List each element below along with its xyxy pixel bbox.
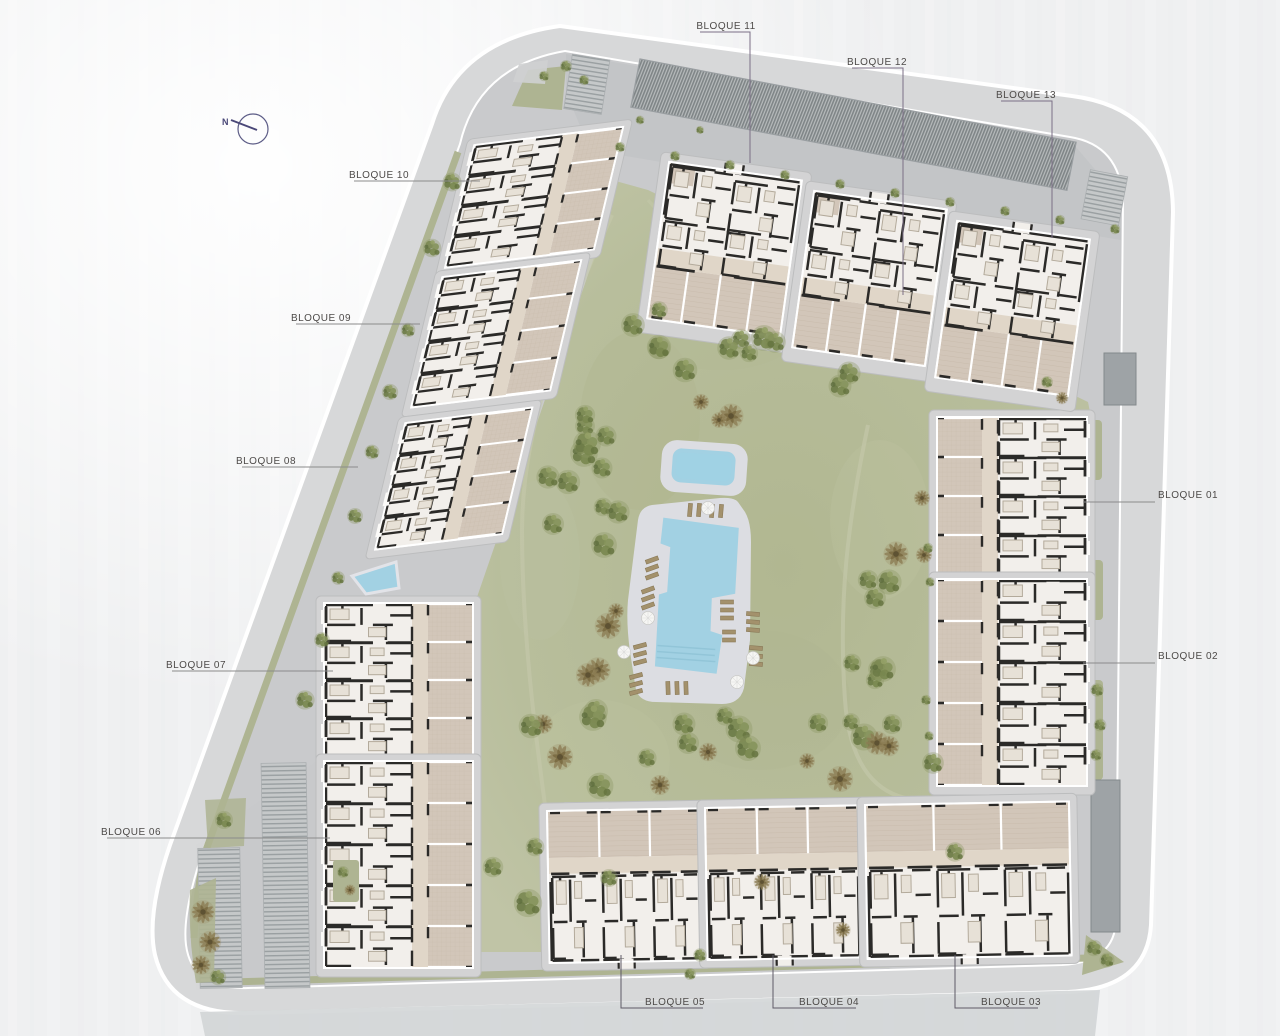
svg-text:BLOQUE 10: BLOQUE 10 [349, 170, 409, 181]
svg-text:BLOQUE 06: BLOQUE 06 [101, 827, 161, 838]
svg-text:BLOQUE 07: BLOQUE 07 [166, 660, 226, 671]
svg-text:BLOQUE 08: BLOQUE 08 [236, 456, 296, 467]
svg-text:BLOQUE 09: BLOQUE 09 [291, 313, 351, 324]
svg-text:BLOQUE 11: BLOQUE 11 [696, 21, 755, 32]
svg-text:BLOQUE 12: BLOQUE 12 [847, 57, 907, 68]
svg-text:BLOQUE 05: BLOQUE 05 [645, 997, 705, 1008]
svg-text:BLOQUE 04: BLOQUE 04 [799, 997, 859, 1008]
svg-text:BLOQUE 01: BLOQUE 01 [1158, 490, 1218, 501]
svg-text:N: N [222, 117, 229, 127]
svg-text:BLOQUE 03: BLOQUE 03 [981, 997, 1041, 1008]
svg-text:BLOQUE 13: BLOQUE 13 [996, 90, 1056, 101]
svg-text:BLOQUE 02: BLOQUE 02 [1158, 651, 1218, 662]
